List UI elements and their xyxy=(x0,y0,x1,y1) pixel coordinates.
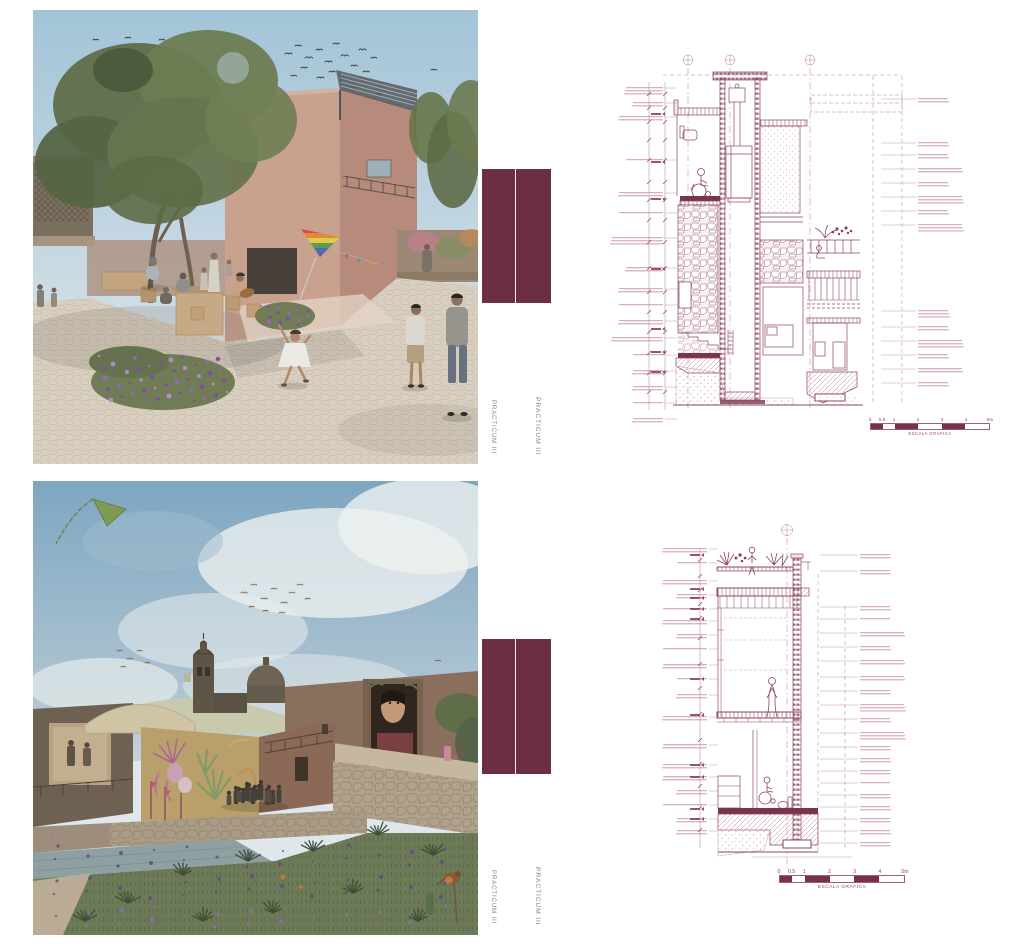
portfolio-sheet: PRACTICUM III PRACTICUM III PRACTICUM II… xyxy=(0,0,1030,944)
scale-tick: 3 xyxy=(853,869,856,875)
scale-tick: 0 xyxy=(778,869,781,875)
dimension-lines xyxy=(647,82,667,410)
maroon-panel-bottom xyxy=(482,639,551,774)
practicum-label: PRACTICUM III xyxy=(490,400,497,454)
maroon-bar xyxy=(516,169,551,303)
scale-segments xyxy=(779,875,905,883)
window xyxy=(367,160,391,177)
section-drawing-top xyxy=(563,42,1023,454)
scale-ticks: 0 0.5 1 2 3 4 5m xyxy=(870,417,990,423)
scale-tick: 5m xyxy=(901,869,908,875)
courtyard-rendering xyxy=(33,10,478,464)
background-mural xyxy=(397,229,478,282)
scale-tick: 4 xyxy=(878,869,881,875)
practicum-label: PRACTICUM III xyxy=(534,867,541,925)
right-annotations xyxy=(881,98,964,386)
scale-tick: 1 xyxy=(893,417,896,422)
scale-tick: 2 xyxy=(917,417,920,422)
maroon-bar xyxy=(482,639,515,774)
scale-tick: 3 xyxy=(941,417,944,422)
door-opening xyxy=(247,248,297,294)
scale-caption: ESCALA GRAFICA xyxy=(779,885,905,890)
scale-tick: 4 xyxy=(965,417,968,422)
section-drawing-bottom xyxy=(612,518,1024,908)
practicum-label: PRACTICUM III xyxy=(490,870,497,924)
murals-rendering xyxy=(33,481,478,935)
scale-tick: 0 xyxy=(869,417,872,422)
left-annotations xyxy=(662,548,718,834)
scale-bar-bottom: 0 0.5 1 2 3 4 5m ESCALA GRAFICA xyxy=(779,869,905,890)
scale-tick: 2 xyxy=(828,869,831,875)
scale-bar-top: 0 0.5 1 2 3 4 5m ESCALA GRAFICA xyxy=(870,417,990,436)
maroon-panel-top xyxy=(482,169,551,303)
scale-tick: 0.5 xyxy=(879,417,885,422)
scale-tick: 0.5 xyxy=(788,869,795,875)
wheelchair-person xyxy=(691,169,711,199)
left-annotations xyxy=(610,87,677,422)
scale-tick: 5m xyxy=(987,417,993,422)
toilet xyxy=(778,797,792,809)
murals-scene xyxy=(33,481,478,935)
courtyard-scene xyxy=(33,10,478,464)
scale-ticks: 0 0.5 1 2 3 4 5m xyxy=(779,869,905,875)
practicum-label: PRACTICUM III xyxy=(534,397,541,455)
wheelchair-person xyxy=(759,777,775,804)
maroon-bar xyxy=(482,169,515,303)
scale-caption: ESCALA GRAFICA xyxy=(870,431,990,436)
scale-segments xyxy=(870,423,990,430)
terrace xyxy=(807,225,860,258)
standing-person xyxy=(767,678,777,718)
scale-tick: 1 xyxy=(803,869,806,875)
right-annotations xyxy=(820,554,906,846)
maroon-bar xyxy=(516,639,551,774)
